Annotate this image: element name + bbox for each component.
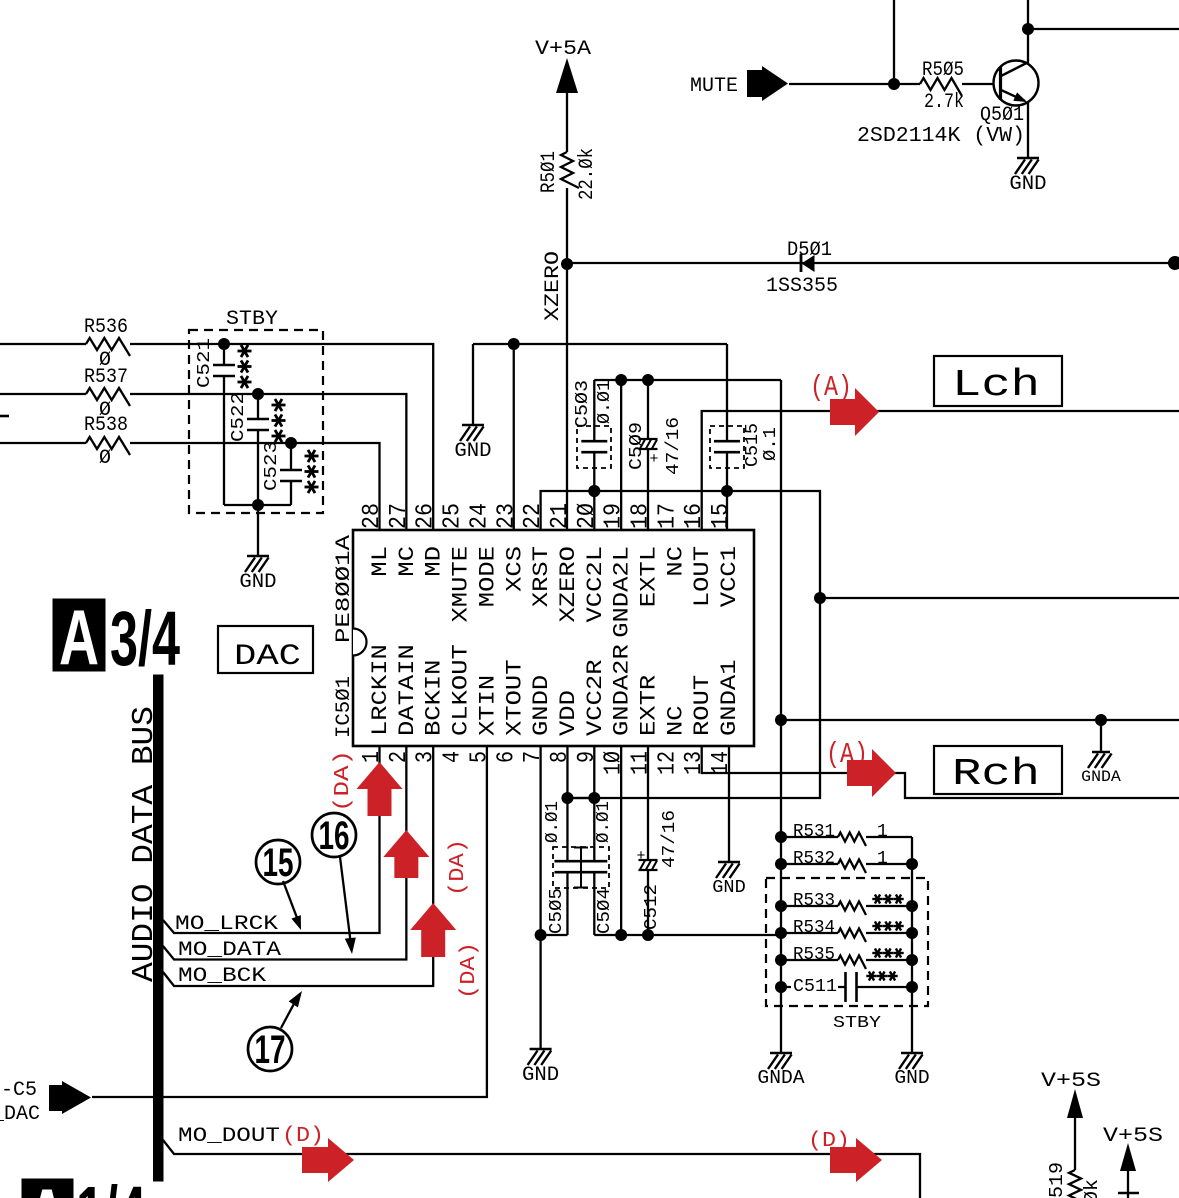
svg-text:1: 1 [877,849,888,869]
svg-text:MD: MD [422,546,447,577]
svg-text:Ø.Ø1: Ø.Ø1 [594,801,614,843]
svg-text:XMUTE: XMUTE [449,546,474,623]
svg-text:GND: GND [454,440,491,463]
svg-text:C511: C511 [793,977,837,997]
svg-text:47/16: 47/16 [664,417,684,475]
svg-text:V+5S: V+5S [1103,1125,1163,1148]
svg-text:GND: GND [522,1064,559,1087]
svg-text:15: 15 [708,503,735,529]
svg-text:V+5S: V+5S [1041,1070,1101,1093]
svg-text:28: 28 [359,503,386,529]
svg-text:STBY: STBY [833,1014,881,1033]
svg-text:4: 4 [440,751,467,763]
svg-text:3/4: 3/4 [110,596,180,682]
svg-text:EXTL: EXTL [637,546,662,607]
svg-text:MUTE: MUTE [690,75,738,98]
svg-text:2SD2114K (VW): 2SD2114K (VW) [857,125,1025,148]
svg-text:MO_LRCK: MO_LRCK [175,913,278,936]
svg-text:C523: C523 [262,441,282,491]
svg-text:C515: C515 [743,423,763,467]
svg-text:ML: ML [368,546,393,577]
svg-text:GND: GND [894,1067,929,1089]
svg-text:1Ø: 1Ø [601,751,628,775]
svg-text:9: 9 [574,751,601,763]
svg-text:AUDIO DATA BUS: AUDIO DATA BUS [127,706,162,982]
svg-text:(DA): (DA) [332,750,355,812]
svg-text:GNDA: GNDA [1081,768,1121,786]
svg-text:VCC2L: VCC2L [583,546,608,623]
svg-text:XZERO: XZERO [556,546,581,623]
svg-text:11: 11 [628,751,655,775]
svg-text:_DAC: _DAC [0,1103,40,1126]
svg-text:15: 15 [263,841,294,885]
svg-text:XZERO: XZERO [542,251,565,321]
svg-text:C5Ø9: C5Ø9 [627,422,647,470]
svg-text:22: 22 [520,503,547,529]
svg-text:VCC1: VCC1 [717,546,742,607]
svg-text:A: A [59,593,99,681]
svg-text:13: 13 [681,751,708,775]
svg-text:MODE: MODE [475,546,500,607]
svg-text:R5Ø1: R5Ø1 [538,151,561,193]
svg-text:2.7k: 2.7k [924,91,964,114]
svg-text:GND: GND [1009,173,1046,196]
svg-text:17: 17 [654,503,681,529]
svg-text:XTIN: XTIN [475,675,500,736]
svg-text:PE8ØØ1A: PE8ØØ1A [333,535,356,643]
svg-text:IC5Ø1: IC5Ø1 [333,676,356,738]
svg-text:R532: R532 [793,849,835,869]
svg-text:GNDA1: GNDA1 [717,660,742,737]
svg-text:R519: R519 [1046,1162,1068,1198]
svg-text:XTOUT: XTOUT [502,660,527,737]
svg-text:C521: C521 [195,338,215,388]
svg-text:MC: MC [395,546,420,577]
svg-text:R5Ø5: R5Ø5 [922,59,964,82]
svg-text:5: 5 [466,751,493,763]
svg-text:14: 14 [708,751,735,775]
svg-text:EXTR: EXTR [637,675,662,736]
svg-text:CLKOUT: CLKOUT [449,644,474,736]
svg-text:GNDA2R: GNDA2R [610,644,635,736]
svg-text:16: 16 [681,503,708,529]
svg-text:MO_BCK: MO_BCK [178,965,266,988]
svg-text:R535: R535 [793,945,835,965]
svg-text:Ø: Ø [99,447,111,470]
svg-text:R537: R537 [84,366,128,389]
svg-text:19: 19 [601,503,628,529]
svg-text:47/16: 47/16 [660,810,680,868]
svg-text:Ø.1: Ø.1 [761,427,781,461]
svg-text:12: 12 [654,751,681,775]
svg-text:2: 2 [386,751,413,763]
svg-text:GND: GND [239,571,276,594]
svg-text:Rch: Rch [952,753,1040,796]
svg-text:21: 21 [547,503,574,529]
svg-text:MO_DOUT: MO_DOUT [178,1125,280,1148]
svg-text:R538: R538 [84,414,128,437]
svg-text:Lch: Lch [952,364,1040,407]
svg-text:R533: R533 [793,891,835,911]
svg-text:DATAIN: DATAIN [395,644,420,736]
svg-text:NC: NC [663,705,688,736]
svg-text:16: 16 [319,814,350,858]
svg-text:C5Ø4: C5Ø4 [595,888,615,934]
svg-text:1Øk: 1Øk [1081,1179,1103,1198]
svg-text:GND: GND [712,878,745,898]
svg-text:R531: R531 [793,822,835,842]
svg-text:C5Ø3: C5Ø3 [573,380,593,428]
svg-text:DAC: DAC [234,640,301,674]
svg-text:D5Ø1: D5Ø1 [787,239,832,262]
svg-text:3: 3 [413,751,440,763]
svg-text:17: 17 [255,1028,286,1072]
svg-text:Ø.Ø1: Ø.Ø1 [543,801,563,843]
svg-text:C522: C522 [229,392,249,442]
svg-text:25: 25 [440,503,467,529]
svg-text:26: 26 [413,503,440,529]
svg-text:NC: NC [663,546,688,577]
svg-text:6: 6 [493,751,520,763]
svg-text:LOUT: LOUT [690,546,715,607]
svg-text:27: 27 [386,503,413,529]
svg-text:7: 7 [520,751,547,763]
svg-text:BCKIN: BCKIN [422,660,447,737]
svg-text:LRCKIN: LRCKIN [368,644,393,736]
svg-text:(D): (D) [282,1125,324,1148]
svg-text:V+5A: V+5A [535,38,591,61]
svg-text:(DA): (DA) [447,839,470,896]
svg-text:XCS: XCS [502,546,527,592]
svg-text:R534: R534 [793,918,835,938]
svg-text:22.Øk: 22.Øk [576,148,599,200]
svg-text:C512: C512 [642,884,662,930]
svg-text:2Ø: 2Ø [574,503,601,529]
svg-text:XRST: XRST [529,546,554,607]
svg-text:GNDA2L: GNDA2L [610,546,635,638]
svg-text:1/4: 1/4 [76,1171,146,1198]
svg-text:+: + [649,451,658,468]
svg-text:GNDA: GNDA [757,1067,805,1089]
svg-text:STBY: STBY [226,308,278,331]
svg-text:1: 1 [877,822,888,842]
svg-text:R536: R536 [84,316,128,339]
svg-text:A: A [27,1172,67,1198]
svg-text:ROUT: ROUT [690,675,715,736]
svg-text:Ø.Ø1: Ø.Ø1 [595,380,615,424]
svg-text:23: 23 [493,503,520,529]
svg-text:+: + [636,848,645,865]
svg-text:18: 18 [628,503,655,529]
svg-text:-C5: -C5 [1,1079,37,1102]
svg-text:Q5Ø1: Q5Ø1 [980,104,1024,127]
svg-text:MO_DATA: MO_DATA [178,939,281,962]
svg-text:GNDD: GNDD [529,675,554,736]
svg-text:VDD: VDD [556,690,581,736]
svg-text:24: 24 [466,503,493,529]
svg-text:C5Ø5: C5Ø5 [547,888,567,934]
svg-text:1: 1 [359,751,386,763]
svg-text:VCC2R: VCC2R [583,660,608,737]
svg-text:8: 8 [547,751,574,763]
svg-text:(DA): (DA) [458,942,481,999]
svg-text:1SS355: 1SS355 [766,275,838,298]
